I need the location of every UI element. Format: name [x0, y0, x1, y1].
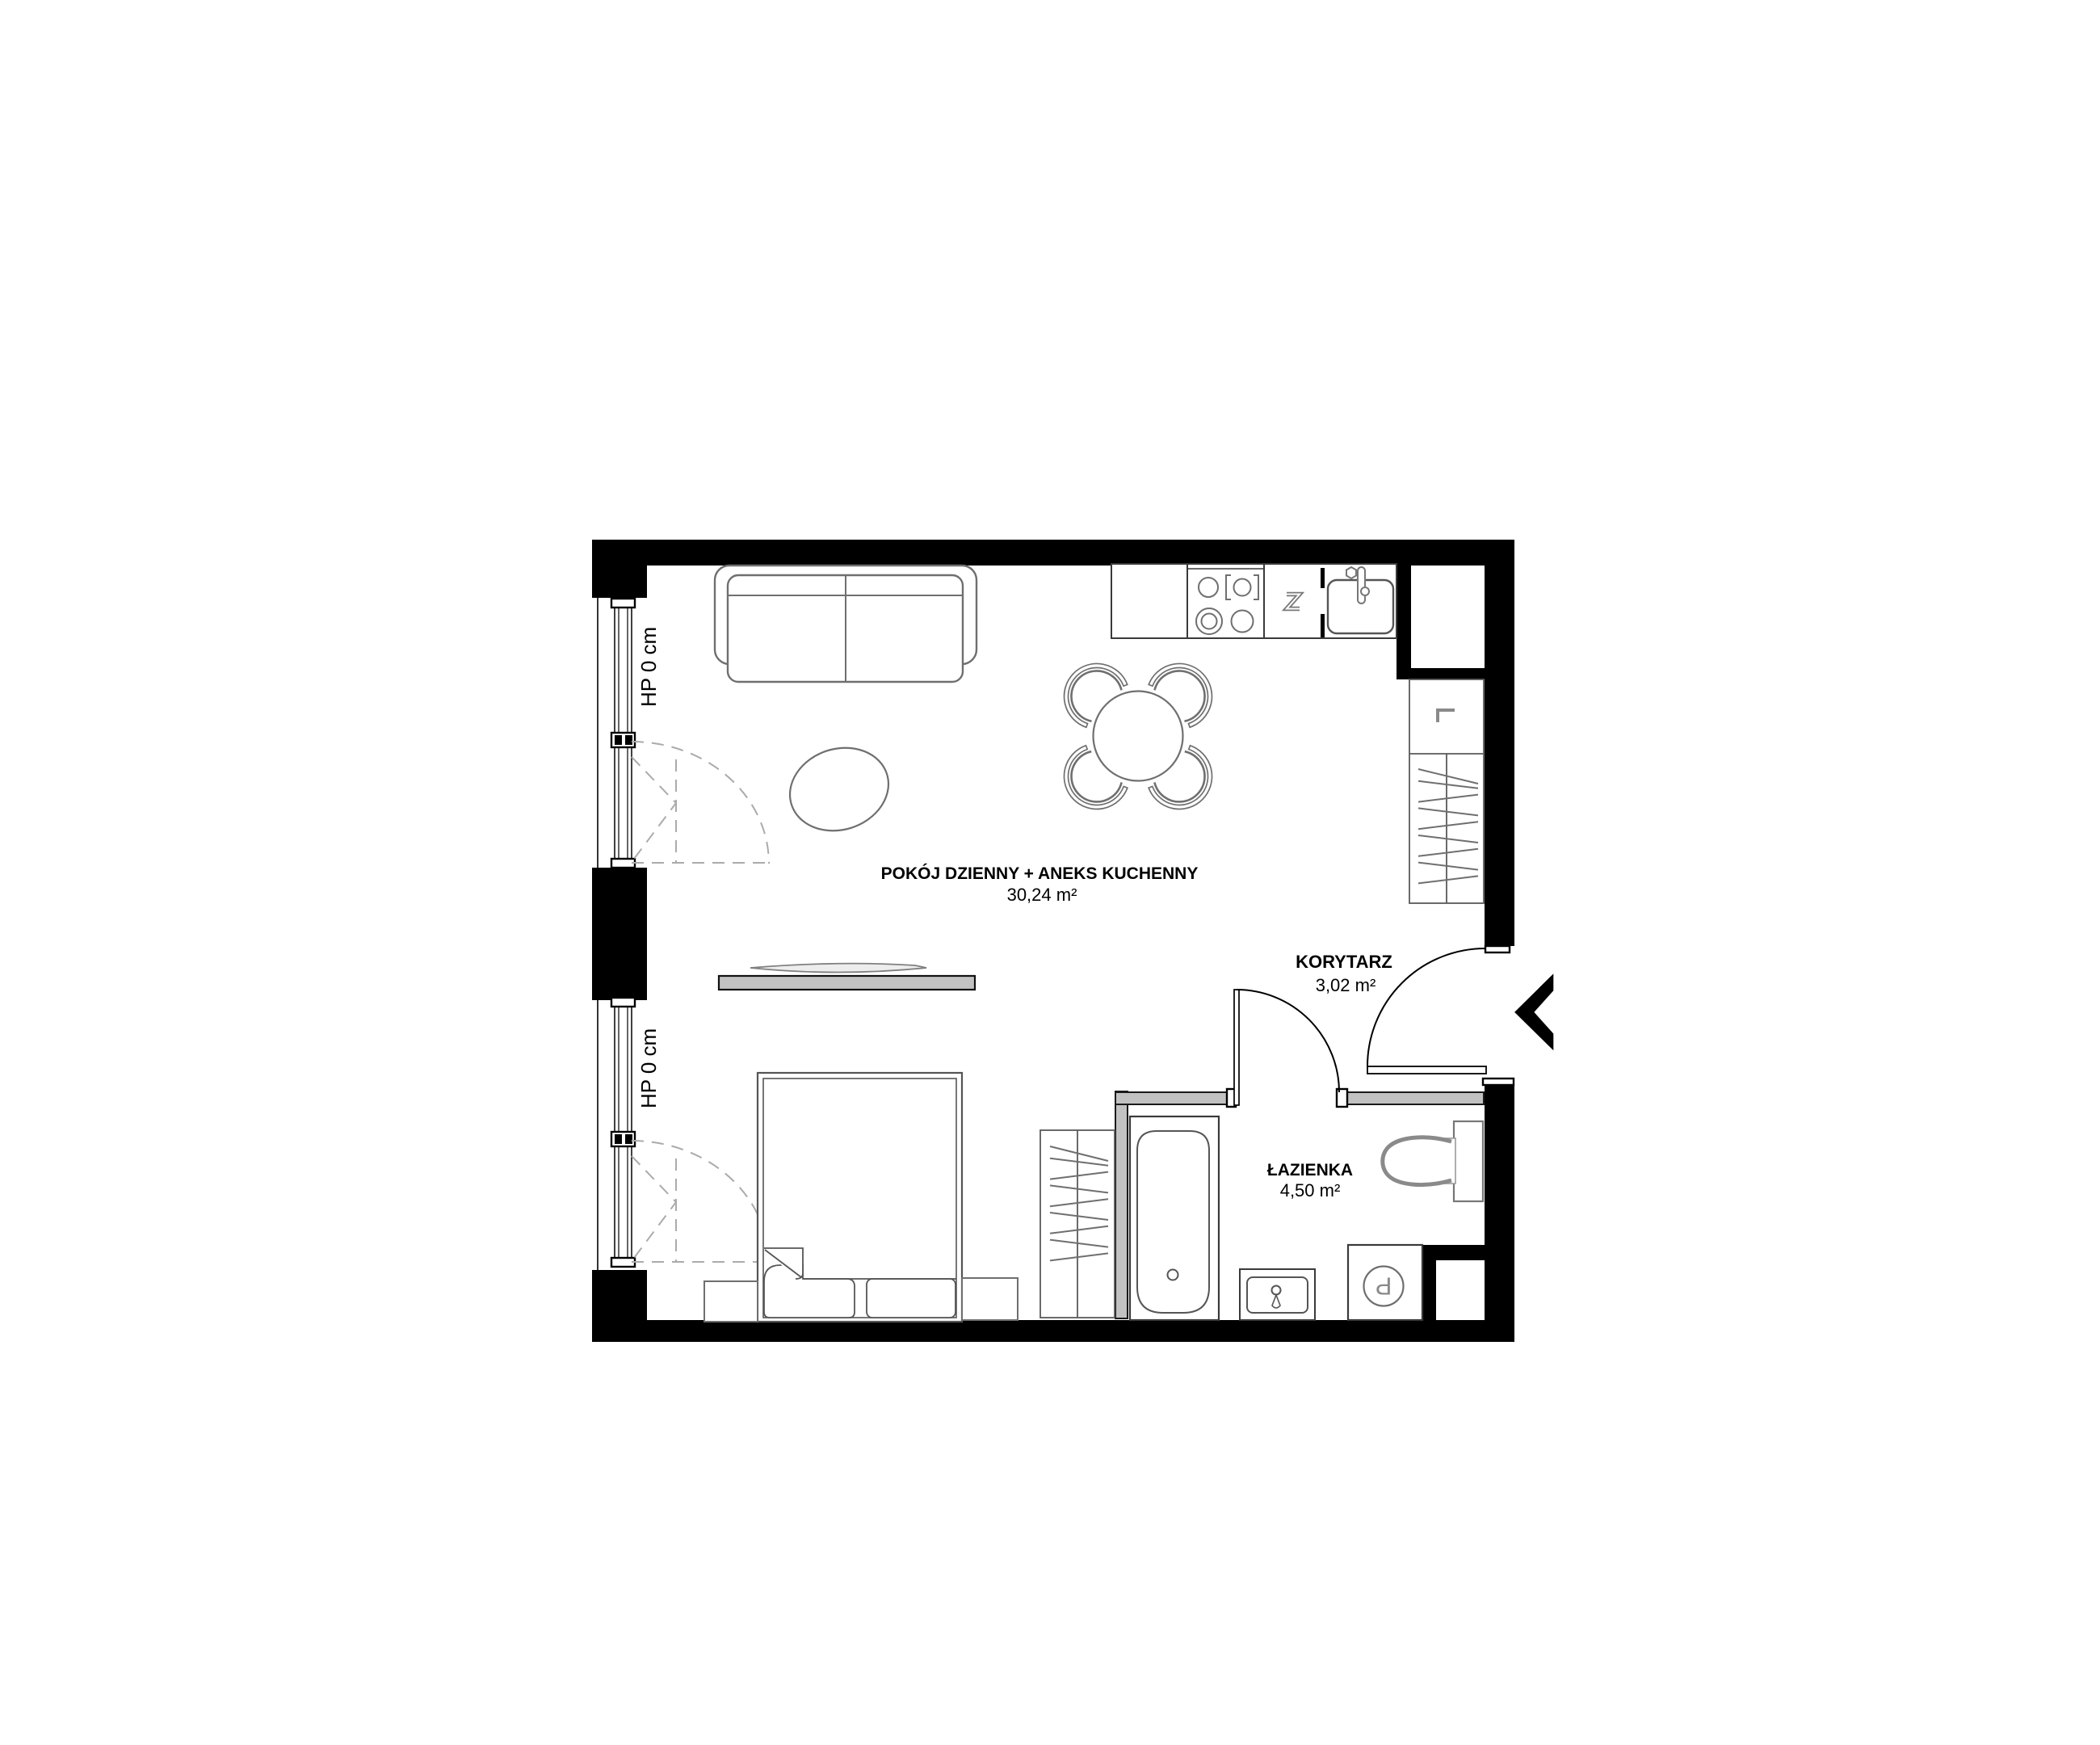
svg-text:HP 0 cm: HP 0 cm	[636, 1028, 661, 1108]
svg-text:30,24 m²: 30,24 m²	[1007, 885, 1077, 905]
svg-text:POKÓJ DZIENNY + ANEKS KUCHENNY: POKÓJ DZIENNY + ANEKS KUCHENNY	[881, 864, 1199, 883]
svg-text:KORYTARZ: KORYTARZ	[1296, 952, 1392, 972]
svg-text:3,02 m²: 3,02 m²	[1316, 975, 1376, 995]
svg-text:P: P	[1375, 1272, 1392, 1301]
svg-text:HP 0 cm: HP 0 cm	[636, 627, 661, 707]
svg-text:ŁAZIENKA: ŁAZIENKA	[1267, 1161, 1353, 1179]
svg-text:4,50 m²: 4,50 m²	[1280, 1180, 1341, 1200]
